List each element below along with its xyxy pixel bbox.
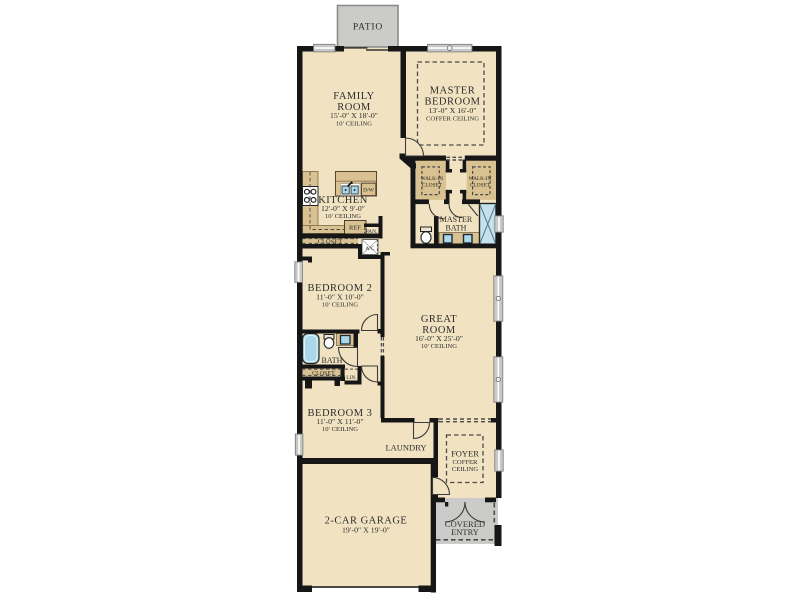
svg-text:FAMILY: FAMILY bbox=[333, 91, 374, 102]
svg-text:CLOSET: CLOSET bbox=[470, 182, 491, 188]
svg-text:10′ CEILING: 10′ CEILING bbox=[336, 121, 372, 128]
svg-text:CEILING: CEILING bbox=[452, 466, 479, 473]
svg-text:GREAT: GREAT bbox=[421, 314, 457, 325]
svg-text:10′ CEILING: 10′ CEILING bbox=[322, 302, 358, 309]
svg-text:CLOSET: CLOSET bbox=[312, 371, 335, 377]
svg-text:13′-0″ X 16′-0″: 13′-0″ X 16′-0″ bbox=[428, 106, 476, 115]
svg-text:MASTER: MASTER bbox=[430, 86, 476, 97]
svg-text:LIN.: LIN. bbox=[346, 375, 357, 381]
svg-text:REF.: REF. bbox=[349, 225, 362, 232]
svg-text:WALK-IN: WALK-IN bbox=[421, 176, 444, 182]
svg-text:A/C: A/C bbox=[365, 246, 375, 252]
svg-text:PATIO: PATIO bbox=[353, 22, 383, 33]
svg-text:BATH: BATH bbox=[446, 224, 467, 233]
svg-text:12′-0″ X 9′-0″: 12′-0″ X 9′-0″ bbox=[321, 204, 365, 213]
svg-text:BATH: BATH bbox=[322, 356, 343, 365]
svg-text:15′-0″ X 18′-0″: 15′-0″ X 18′-0″ bbox=[330, 111, 378, 120]
svg-text:FOYER: FOYER bbox=[451, 449, 479, 459]
svg-text:10′ CEILING: 10′ CEILING bbox=[325, 213, 361, 220]
svg-text:CLOSET: CLOSET bbox=[318, 239, 343, 246]
svg-text:LAUNDRY: LAUNDRY bbox=[385, 443, 426, 453]
svg-text:COFFER: COFFER bbox=[453, 459, 479, 466]
svg-text:11′-0″ X 11′-0″: 11′-0″ X 11′-0″ bbox=[316, 417, 363, 426]
svg-text:COFFER CEILING: COFFER CEILING bbox=[426, 116, 479, 123]
svg-text:19′-0″ X 19′-0″: 19′-0″ X 19′-0″ bbox=[342, 526, 390, 535]
svg-text:D/W: D/W bbox=[363, 188, 375, 194]
svg-text:PAN.: PAN. bbox=[366, 229, 378, 235]
svg-text:10′ CEILING: 10′ CEILING bbox=[322, 426, 358, 433]
svg-text:CLOSET: CLOSET bbox=[422, 182, 443, 188]
svg-text:16′-0″ X 25′-0″: 16′-0″ X 25′-0″ bbox=[415, 334, 463, 343]
svg-text:ENTRY: ENTRY bbox=[451, 527, 479, 537]
svg-text:11′-0″ X 10′-0″: 11′-0″ X 10′-0″ bbox=[316, 293, 364, 302]
svg-text:10′ CEILING: 10′ CEILING bbox=[421, 343, 457, 350]
svg-text:WALK-IN: WALK-IN bbox=[469, 176, 492, 182]
